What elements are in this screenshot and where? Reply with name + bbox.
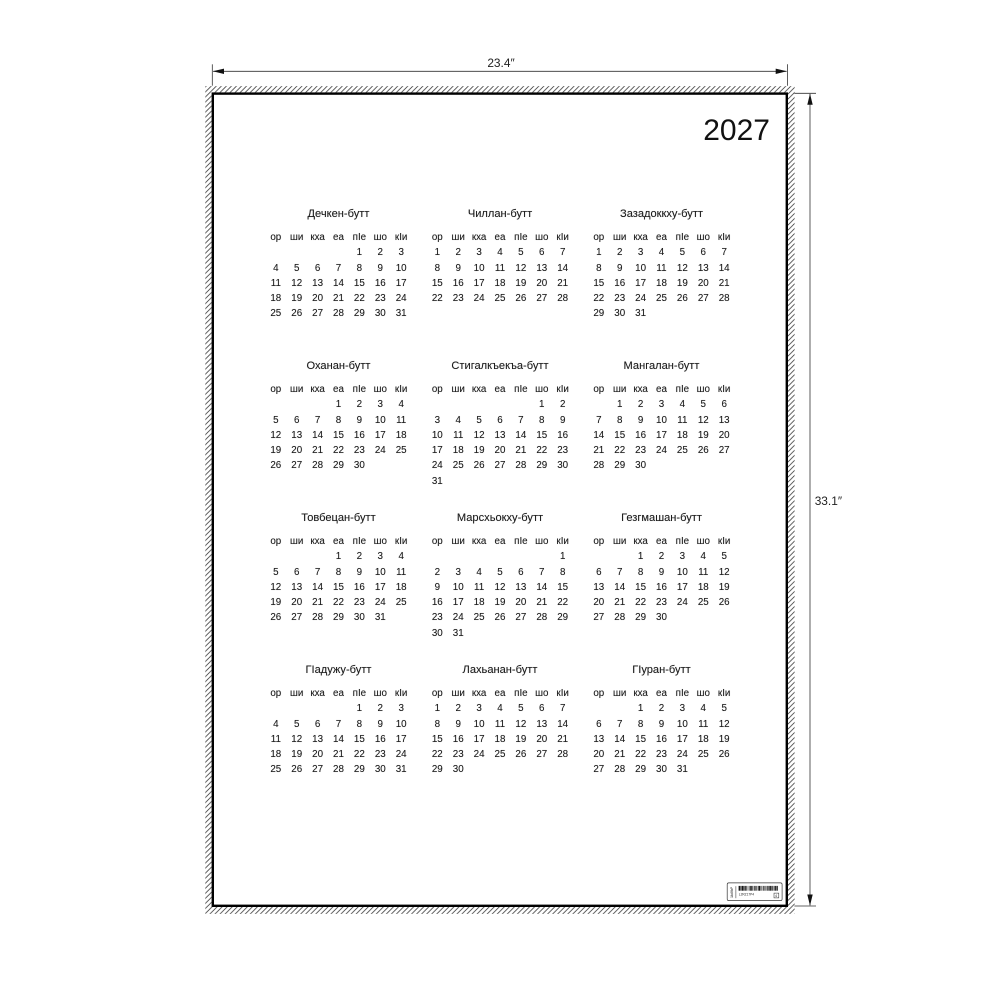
svg-text:L2RZ17P4: L2RZ17P4 xyxy=(739,892,754,896)
svg-text:14x98zP: 14x98zP xyxy=(730,887,734,898)
svg-text:4: 4 xyxy=(775,894,777,898)
